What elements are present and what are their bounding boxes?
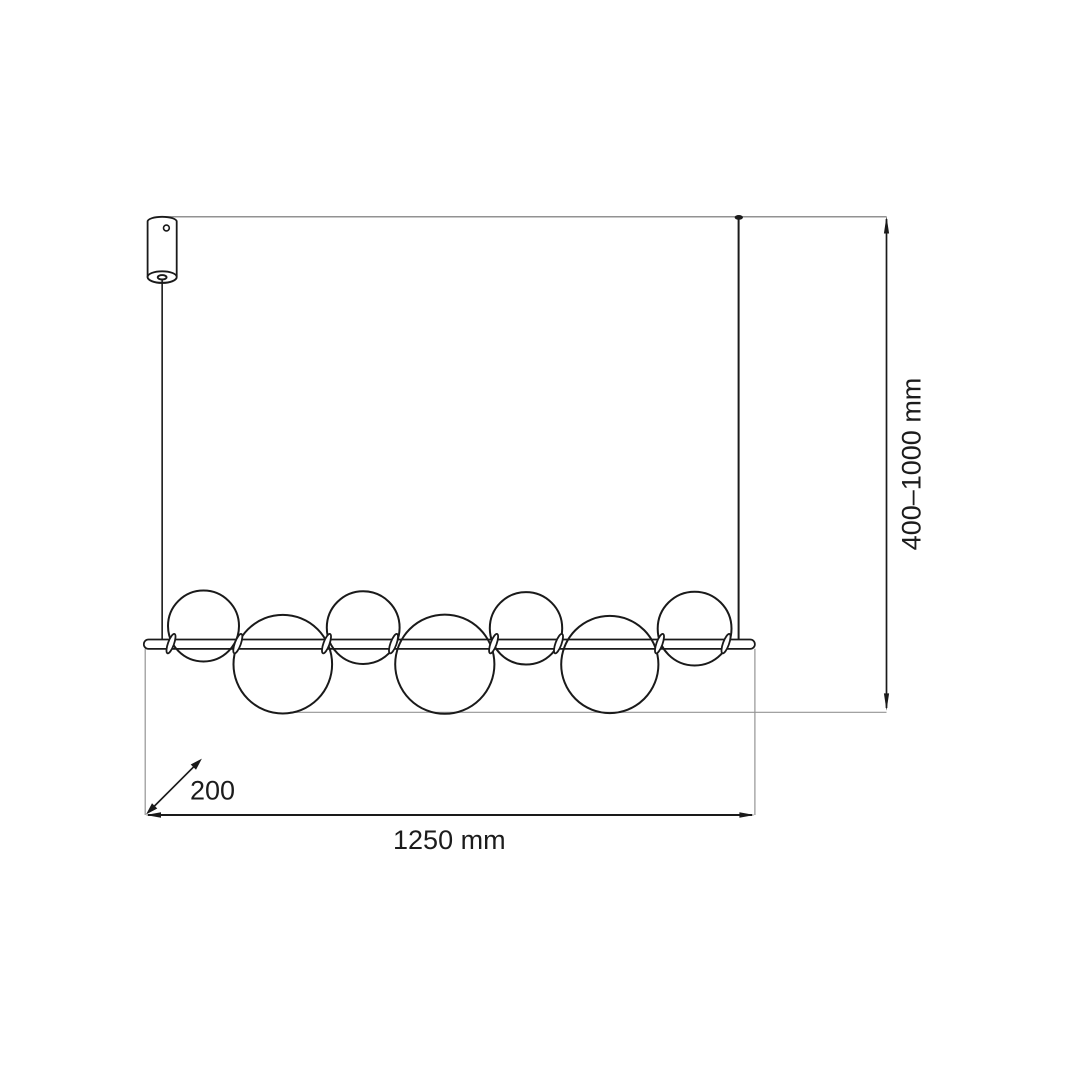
svg-text:400–1000 mm: 400–1000 mm xyxy=(897,378,927,551)
svg-text:200: 200 xyxy=(190,776,235,806)
svg-text:1250 mm: 1250 mm xyxy=(393,825,506,855)
